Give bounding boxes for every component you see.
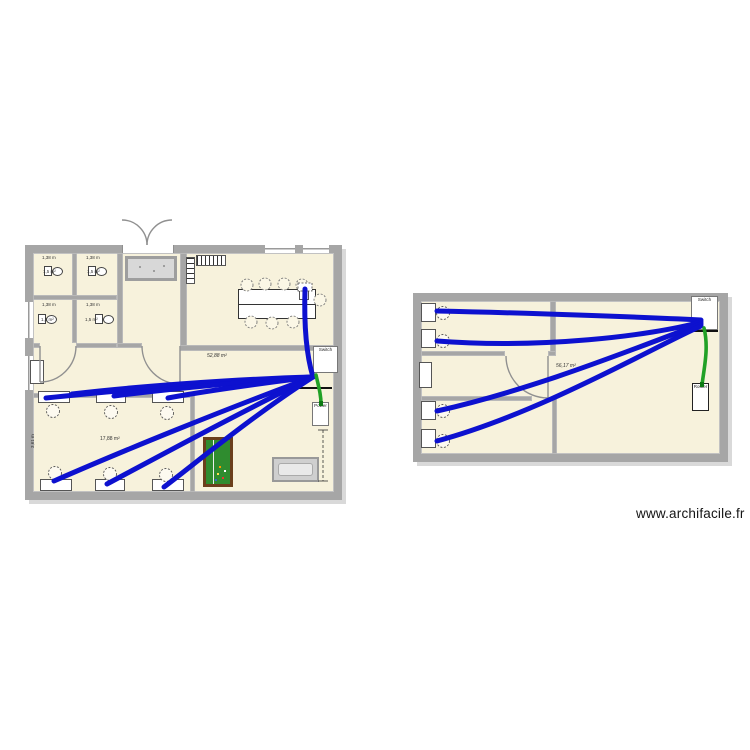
floorplan-canvas: 1,38 m 1,38 m 1,38 m 1,38 m 1,5 m² 1,5 m… [0, 0, 750, 750]
measure-line [318, 430, 328, 481]
watermark: www.archifacile.fr [636, 506, 745, 521]
cable[interactable] [437, 311, 701, 320]
door-arc [40, 346, 76, 382]
cable-end [700, 382, 704, 387]
door-arc [147, 220, 172, 245]
cable-green[interactable] [316, 375, 321, 404]
cable-green[interactable] [702, 328, 706, 385]
door-arc [122, 220, 147, 245]
door-arc [142, 346, 180, 384]
cable-overlay [0, 0, 750, 750]
cable[interactable] [437, 324, 701, 411]
ethernet-cables-first[interactable] [437, 311, 701, 441]
cable[interactable] [305, 289, 313, 377]
door-arcs [40, 220, 548, 398]
chair-icons[interactable] [241, 278, 326, 329]
cable-end [319, 401, 323, 406]
